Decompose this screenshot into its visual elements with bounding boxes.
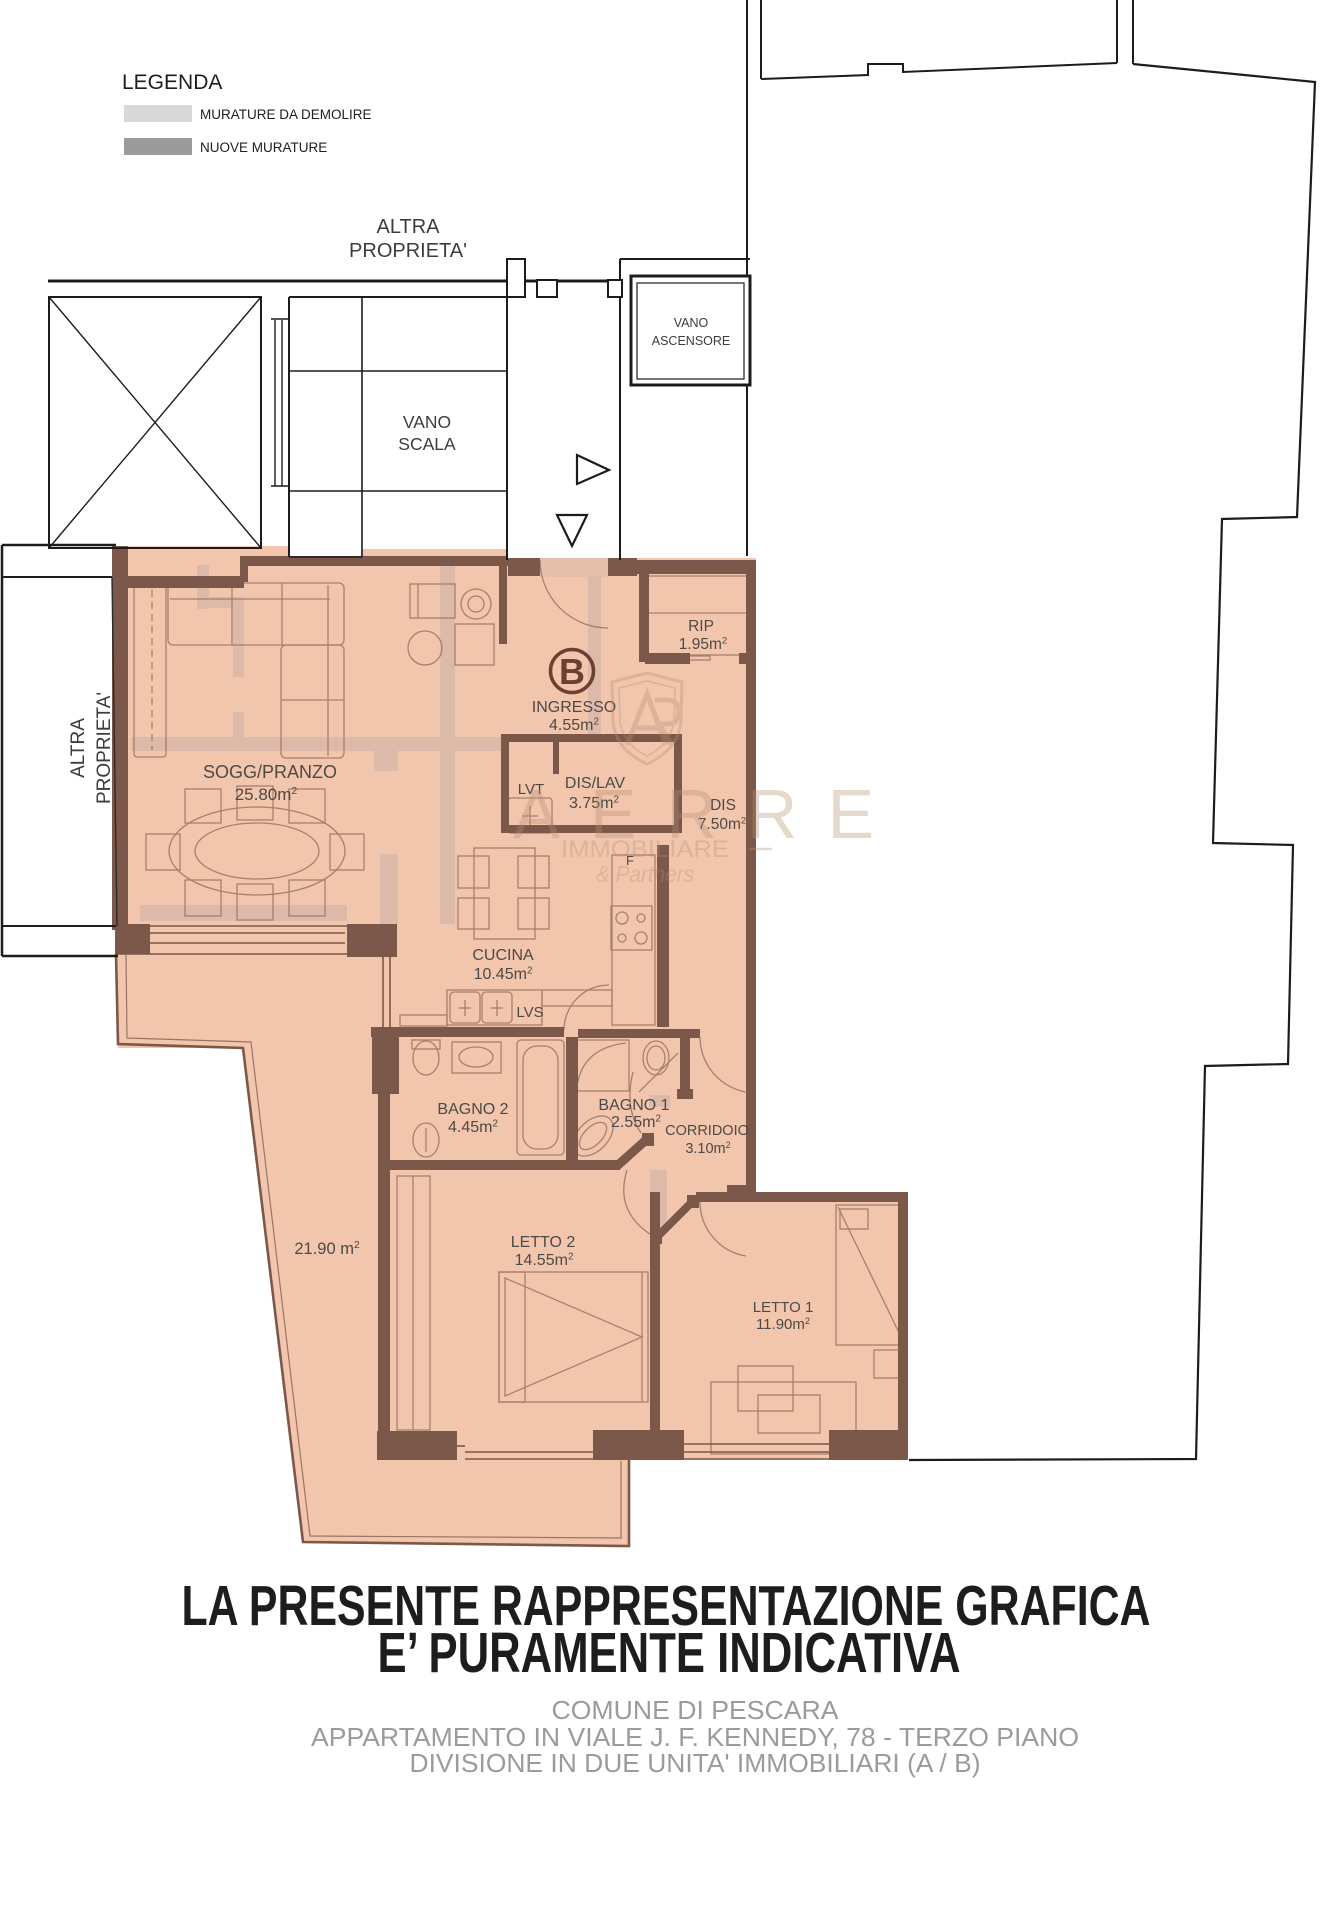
svg-text:LVS: LVS: [516, 1004, 543, 1021]
svg-text:2.55m2: 2.55m2: [611, 1113, 661, 1131]
svg-text:SCALA: SCALA: [398, 434, 456, 454]
svg-text:LETTO 2: LETTO 2: [511, 1234, 576, 1251]
svg-text:11.90m2: 11.90m2: [756, 1316, 810, 1333]
svg-text:10.45m2: 10.45m2: [474, 965, 533, 983]
svg-text:ALTRA: ALTRA: [377, 216, 441, 238]
svg-text:ASCENSORE: ASCENSORE: [652, 334, 731, 348]
svg-text:1.95m2: 1.95m2: [679, 636, 727, 653]
svg-text:SOGG/PRANZO: SOGG/PRANZO: [203, 762, 337, 782]
svg-text:B: B: [559, 651, 585, 692]
svg-text:4.45m2: 4.45m2: [448, 1118, 498, 1136]
svg-text:VANO: VANO: [403, 412, 451, 432]
svg-text:RIP: RIP: [688, 618, 714, 635]
svg-text:3.10m2: 3.10m2: [685, 1140, 730, 1157]
svg-text:BAGNO 2: BAGNO 2: [437, 1101, 508, 1118]
svg-text:14.55m2: 14.55m2: [515, 1251, 574, 1269]
svg-text:COMUNE DI PESCARA: COMUNE DI PESCARA: [552, 1695, 840, 1725]
svg-text:LEGENDA: LEGENDA: [122, 71, 222, 94]
svg-text:& Partners: & Partners: [596, 861, 694, 887]
svg-text:NUOVE MURATURE: NUOVE MURATURE: [200, 140, 327, 155]
svg-text:25.80m2: 25.80m2: [235, 785, 298, 804]
svg-text:MURATURE DA DEMOLIRE: MURATURE DA DEMOLIRE: [200, 107, 372, 122]
svg-text:IMMOBILIARE: IMMOBILIARE: [561, 836, 729, 863]
svg-text:CUCINA: CUCINA: [472, 947, 534, 964]
svg-text:E’ PURAMENTE INDICATIVA: E’ PURAMENTE INDICATIVA: [378, 1621, 961, 1685]
svg-text:INGRESSO: INGRESSO: [532, 699, 616, 716]
svg-text:DIVISIONE IN DUE UNITA' IMMOBI: DIVISIONE IN DUE UNITA' IMMOBILIARI (A /…: [410, 1748, 981, 1778]
svg-text:VANO: VANO: [674, 316, 709, 330]
svg-text:BAGNO 1: BAGNO 1: [598, 1097, 669, 1114]
svg-text:4.55m2: 4.55m2: [549, 716, 599, 734]
svg-text:PROPRIETA': PROPRIETA': [349, 240, 467, 262]
svg-text:21.90 m2: 21.90 m2: [294, 1240, 360, 1258]
svg-text:ALTRA: ALTRA: [68, 718, 89, 778]
svg-text:PROPRIETA': PROPRIETA': [94, 692, 115, 804]
svg-text:CORRIDOIO: CORRIDOIO: [665, 1123, 749, 1139]
svg-text:LETTO 1: LETTO 1: [753, 1299, 814, 1316]
